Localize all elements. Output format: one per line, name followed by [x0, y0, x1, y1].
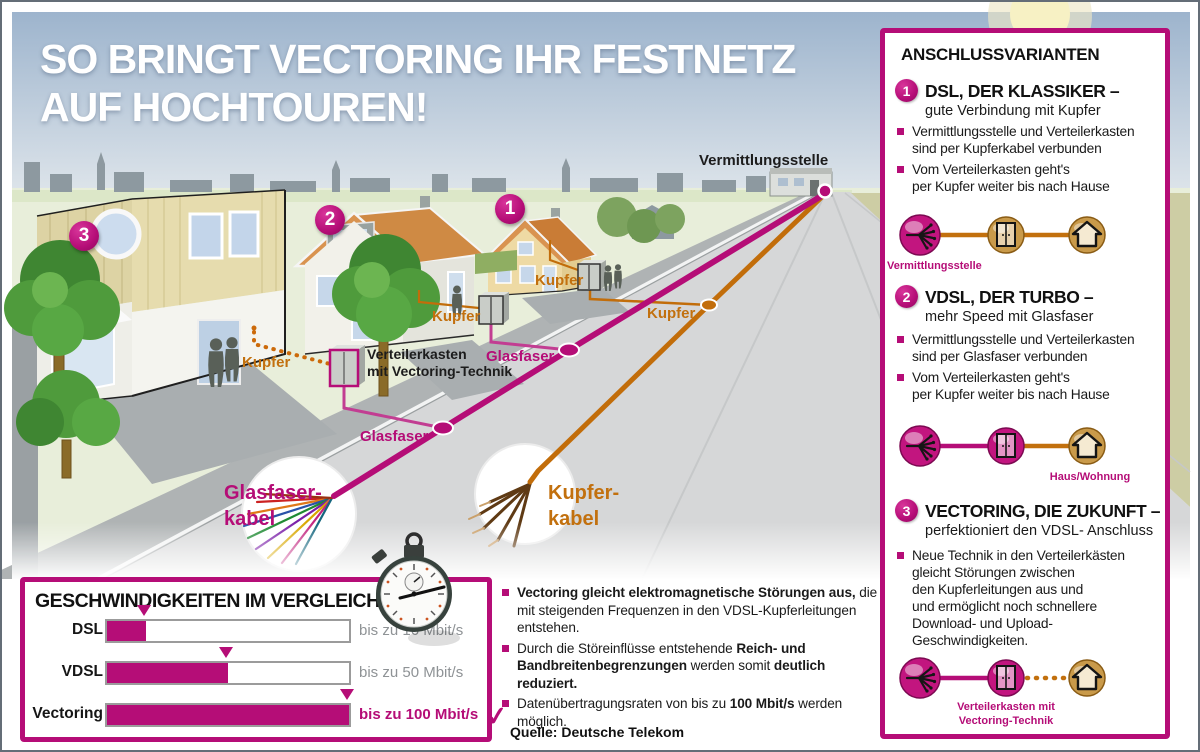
verteilerkasten-label: Verteilerkasten mit Vectoring-Technik: [367, 346, 512, 380]
item-subheading: gute Verbindung mit Kupfer: [925, 103, 1101, 119]
house-number-3: 3: [69, 221, 99, 251]
glasfaser-kabel-line1: Glasfaser-: [224, 480, 322, 506]
bar-marker-vectoring: [340, 689, 354, 700]
cabinet-icon: [988, 217, 1024, 253]
bar-value-vectoring: bis zu 100 Mbit/s✓: [359, 706, 508, 723]
glasfaser-kabel-label: Glasfaser- kabel: [224, 480, 322, 532]
kupfer-label-house3: Kupfer: [242, 354, 290, 371]
bullet-square-icon: [502, 589, 509, 596]
connection-diagram-vectoring: [893, 650, 1165, 706]
round-window: [93, 211, 139, 257]
bar-fill-vdsl: [107, 663, 228, 683]
source-credit: Quelle: Deutsche Telekom: [510, 724, 684, 740]
item-subheading: mehr Speed mit Glasfaser: [925, 309, 1093, 325]
bar-label-vectoring: Vectoring: [29, 705, 103, 723]
bar-fill-vectoring: [107, 705, 349, 725]
item-heading: DSL, DER KLASSIKER –: [925, 79, 1119, 102]
sidebar-item-dsl: 1 DSL, DER KLASSIKER –: [895, 79, 1119, 102]
fiber-node: [559, 344, 579, 357]
house-number-2: 2: [315, 205, 345, 235]
item-bullets: Vermittlungsstelle und Verteilerkastensi…: [897, 331, 1147, 407]
bullet-text: Vermittlungsstelle und Verteilerkastensi…: [912, 331, 1134, 365]
icon-label-line2: Vectoring-Technik: [923, 714, 1089, 728]
item-subheading: perfektioniert den VDSL- Anschluss: [925, 523, 1153, 539]
list-item: Vermittlungsstelle und Verteilerkastensi…: [897, 123, 1147, 157]
connection-diagram-vdsl: [893, 418, 1165, 474]
bullet-square-icon: [502, 645, 509, 652]
stopwatch-icon: [354, 530, 478, 654]
exchange-hub-icon: [900, 658, 940, 698]
anschlussvarianten-panel: ANSCHLUSSVARIANTEN 1 DSL, DER KLASSIKER …: [880, 28, 1170, 739]
kupfer-kabel-label: Kupfer- kabel: [548, 480, 619, 532]
note-bullet: Vectoring gleicht elektromagnetische Stö…: [502, 584, 880, 637]
infographic-canvas: SO BRINGT VECTORING IHR FESTNETZ AUF HOC…: [0, 0, 1200, 752]
icon-label-verteilerkasten: Verteilerkasten mit Vectoring-Technik: [923, 700, 1089, 728]
kupfer-label-house2: Kupfer: [432, 308, 480, 325]
fiber-node: [433, 422, 453, 435]
item-number-badge: 1: [895, 79, 918, 102]
item-number-badge: 2: [895, 285, 918, 308]
cabinet-house2: [479, 292, 509, 324]
glasfaser-label-2: Glasfaser: [360, 428, 428, 445]
page-title-line1: SO BRINGT VECTORING IHR FESTNETZ: [40, 36, 795, 83]
note-text-2: Durch die Störeinflüsse entstehende Reic…: [517, 640, 880, 693]
bullet-text: Neue Technik in den Verteilerkästengleic…: [912, 547, 1147, 649]
bullet-square-icon: [502, 700, 509, 707]
bullet-square-icon: [897, 128, 904, 135]
exchange-hub-icon: [900, 215, 940, 255]
item-heading: VDSL, DER TURBO –: [925, 285, 1093, 308]
bullet-text: Vom Verteilerkasten geht'sper Kupfer wei…: [912, 369, 1110, 403]
copper-node: [701, 300, 717, 311]
bar-value-vdsl: bis zu 50 Mbit/s: [359, 664, 463, 681]
bullet-text: Vermittlungsstelle und Verteilerkastensi…: [912, 123, 1134, 157]
list-item: Vermittlungsstelle und Verteilerkastensi…: [897, 331, 1147, 365]
sidebar-title: ANSCHLUSSVARIANTEN: [901, 45, 1099, 65]
bullet-square-icon: [897, 336, 904, 343]
vermittlungsstelle-node: [819, 185, 832, 198]
item-heading: VECTORING, DIE ZUKUNFT –: [925, 499, 1160, 522]
kupfer-kabel-line1: Kupfer-: [548, 480, 619, 506]
notes-section: Vectoring gleicht elektromagnetische Stö…: [502, 584, 880, 733]
sidebar-item-vdsl: 2 VDSL, DER TURBO –: [895, 285, 1093, 308]
list-item: Vom Verteilerkasten geht'sper Kupfer wei…: [897, 369, 1147, 403]
connection-diagram-dsl: [893, 207, 1165, 263]
house-icon: [1069, 660, 1105, 696]
item-bullets: Neue Technik in den Verteilerkästengleic…: [897, 547, 1147, 653]
bar-value-vectoring-text: bis zu 100 Mbit/s: [359, 706, 478, 723]
list-item: Neue Technik in den Verteilerkästengleic…: [897, 547, 1147, 649]
bar-label-dsl: DSL: [29, 621, 103, 639]
bar-label-vdsl: VDSL: [29, 663, 103, 681]
bar-fill-dsl: [107, 621, 146, 641]
item-number-badge: 3: [895, 499, 918, 522]
kupfer-label-house1: Kupfer: [535, 272, 583, 289]
icon-label-vermittlungsstelle: Vermittlungsstelle: [887, 259, 997, 273]
chart-title: GESCHWINDIGKEITEN IM VERGLEICH: [35, 590, 380, 613]
sidebar-item-vectoring: 3 VECTORING, DIE ZUKUNFT –: [895, 499, 1160, 522]
verteilerkasten-label-line2: mit Vectoring-Technik: [367, 363, 512, 380]
item-bullets: Vermittlungsstelle und Verteilerkastensi…: [897, 123, 1147, 199]
list-item: Vom Verteilerkasten geht'sper Kupfer wei…: [897, 161, 1147, 195]
bar-marker-dsl: [137, 605, 151, 616]
note-bullet: Durch die Störeinflüsse entstehende Reic…: [502, 640, 880, 693]
bar-track: [105, 619, 351, 643]
note-text-1: Vectoring gleicht elektromagnetische Stö…: [517, 584, 880, 637]
bullet-square-icon: [897, 552, 904, 559]
cabinet-icon: [988, 428, 1024, 464]
house-icon: [1069, 428, 1105, 464]
bar-marker-vdsl: [219, 647, 233, 658]
house-icon: [1069, 217, 1105, 253]
icon-label-haus-wohnung: Haus/Wohnung: [1015, 470, 1165, 484]
bar-track: [105, 661, 351, 685]
bullet-text: Vom Verteilerkasten geht'sper Kupfer wei…: [912, 161, 1110, 195]
bar-track: [105, 703, 351, 727]
vermittlungsstelle-label: Vermittlungsstelle: [699, 152, 828, 169]
house-number-1: 1: [495, 194, 525, 224]
hedge: [475, 250, 517, 274]
kupfer-kabel-line2: kabel: [548, 506, 619, 532]
glasfaser-kabel-line2: kabel: [224, 506, 322, 532]
kupfer-label-street: Kupfer: [647, 305, 695, 322]
bullet-square-icon: [897, 166, 904, 173]
cabinet-vectoring: [330, 345, 365, 386]
exchange-hub-icon: [900, 426, 940, 466]
cabinet-icon: [988, 660, 1024, 696]
page-title-line2: AUF HOCHTOUREN!: [40, 84, 427, 131]
bullet-square-icon: [897, 374, 904, 381]
icon-label-line1: Verteilerkasten mit: [923, 700, 1089, 714]
verteilerkasten-label-line1: Verteilerkasten: [367, 346, 512, 363]
